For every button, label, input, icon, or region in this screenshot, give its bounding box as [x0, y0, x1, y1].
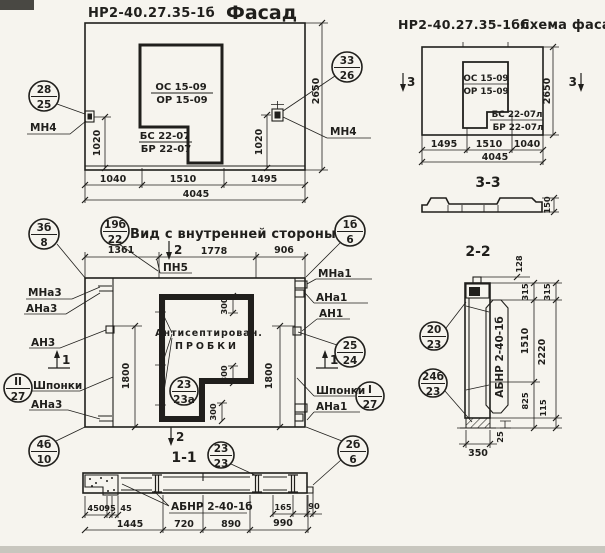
dim-300a: 300 — [219, 297, 229, 315]
boards-and-joints — [121, 473, 313, 493]
svg-text:МНа3: МНа3 — [28, 287, 62, 299]
section-mark-3-right: 3 — [569, 73, 584, 92]
section-2-2-title: 2-2 — [465, 244, 490, 260]
svg-text:АНа3: АНа3 — [31, 399, 62, 411]
dim-128: 128 — [514, 255, 524, 273]
dim-1510: 1510 — [520, 327, 531, 354]
dim-300c: 300 — [208, 403, 218, 421]
note-plugs: ПРОБКИ — [175, 341, 239, 352]
panel-name-rotated: АБНР 2-40-1б — [494, 316, 506, 398]
anchor-label-mn4-left: МН4 — [27, 121, 86, 134]
dim-90: 90 — [308, 501, 320, 511]
dim-4045: 4045 — [183, 189, 209, 200]
inner-panel-outline — [85, 278, 305, 427]
pn5-label: ПН5 — [157, 260, 192, 274]
section-mark-2-bottom: 2 — [168, 427, 184, 446]
label-ana3-lower: АНа3 — [29, 399, 100, 419]
svg-text:23: 23 — [426, 386, 441, 398]
svg-text:II: II — [14, 376, 22, 388]
callout-3b-8: 3б 8 — [29, 219, 86, 279]
dim-990: 990 — [273, 518, 293, 529]
label-an3: АН3 — [29, 330, 106, 349]
scan-smudge-bottom — [0, 546, 605, 553]
drawing-canvas: НР2-40.27.35-1б Фасад ОС 15-09 ОР 15-09 … — [0, 0, 605, 553]
svg-text:2б: 2б — [346, 439, 361, 451]
facade-code: НР2-40.27.35-1б — [88, 6, 215, 21]
dim-450: 450 — [87, 503, 105, 513]
callout-ii-27: II 27 — [4, 374, 32, 403]
top-anchor-plate — [469, 287, 480, 296]
scheme-opening-mark-1: ОС 15-09 — [463, 74, 508, 84]
callout-top: 28 — [37, 84, 52, 96]
scheme-title: Схема фасада — [520, 18, 605, 33]
dim-906: 906 — [274, 245, 294, 256]
dim-1495: 1495 — [431, 139, 457, 150]
anchor-plate-right — [271, 101, 284, 121]
label-mna3: МНа3 — [26, 287, 100, 299]
svg-text:23: 23 — [214, 443, 229, 455]
section-3-3: 3-3 150 — [422, 175, 559, 215]
svg-text:27: 27 — [11, 391, 26, 403]
section-mark-1-left: 1 — [48, 350, 70, 368]
svg-text:22: 22 — [108, 234, 123, 246]
section-1-1-title: 1-1 — [171, 450, 196, 466]
callout-20-23: 20 23 — [420, 302, 466, 351]
dim-825: 825 — [520, 392, 530, 410]
dim-45: 45 — [120, 503, 132, 513]
svg-text:I: I — [368, 384, 372, 396]
blueprint-page: НР2-40.27.35-1б Фасад ОС 15-09 ОР 15-09 … — [0, 0, 605, 553]
label-an1: АН1 — [302, 308, 350, 331]
svg-text:25: 25 — [343, 340, 358, 352]
dim-300b: 300 — [219, 365, 229, 383]
svg-text:3б: 3б — [37, 222, 52, 234]
callout-24b-23: 24б 23 — [419, 369, 472, 422]
note-antiseptic: Антисептирован. — [155, 328, 263, 339]
dim-165: 165 — [274, 502, 292, 512]
svg-text:ПН5: ПН5 — [163, 262, 188, 274]
dim-350: 350 — [468, 448, 488, 459]
svg-text:2: 2 — [176, 430, 184, 444]
inner-view-drawing: Вид с внутренней стороны Антисептирован.… — [4, 216, 384, 485]
scheme-code: НР2-40.27.35-1бл — [398, 17, 530, 32]
dim-1778: 1778 — [201, 246, 228, 257]
svg-text:20: 20 — [427, 324, 442, 336]
dim-95: 95 — [104, 503, 116, 513]
dim-1020-left: 1020 — [92, 129, 103, 156]
svg-text:24: 24 — [343, 355, 358, 367]
svg-text:8: 8 — [40, 237, 47, 249]
svg-text:Шпонки: Шпонки — [33, 380, 82, 392]
svg-text:6: 6 — [349, 454, 356, 466]
dim-315-inner: 315 — [520, 283, 530, 301]
dim-890: 890 — [221, 519, 241, 530]
scheme-sill-mark-2: БР 22-07л — [493, 123, 544, 133]
svg-text:АНа1: АНа1 — [316, 292, 347, 304]
svg-text:АНа3: АНа3 — [26, 303, 57, 315]
callout-23-23a: 23 23а — [170, 377, 198, 406]
svg-text:АН1: АН1 — [319, 308, 343, 320]
dim-1510: 1510 — [476, 139, 503, 150]
label-ana1: АНа1 — [305, 292, 368, 304]
dim-1800-right: 1800 — [264, 362, 275, 389]
svg-text:МНа1: МНа1 — [318, 268, 352, 280]
facade-sill-mark-1: БС 22-07 — [140, 131, 190, 142]
dim-2650: 2650 — [311, 77, 322, 104]
scheme-sill-mark-1: БС 22-07л — [492, 110, 543, 120]
svg-text:3: 3 — [569, 75, 577, 89]
callout-4b-10: 4б 10 — [29, 427, 85, 466]
label-shponki-right: Шпонки — [297, 378, 365, 397]
svg-text:1б: 1б — [343, 219, 358, 231]
profile-joints — [448, 205, 498, 212]
inner-top-dimensions: 1361 1778 906 — [82, 245, 308, 278]
svg-text:10: 10 — [37, 454, 52, 466]
dim-4045: 4045 — [482, 152, 508, 163]
plug-offset-dims: 300 300 300 — [208, 293, 238, 424]
svg-text:23: 23 — [177, 379, 192, 391]
svg-text:23: 23 — [214, 458, 229, 470]
anchor-label-mn4-right: МН4 — [283, 117, 371, 138]
callout-2b-6: 2б 6 — [306, 427, 368, 485]
dim-1040: 1040 — [514, 139, 541, 150]
callout-19b-22: 19б 22 — [101, 217, 158, 271]
dim-1495: 1495 — [251, 174, 277, 185]
dim-2650: 2650 — [542, 77, 553, 104]
callout-top: 33 — [340, 55, 355, 67]
svg-text:2: 2 — [174, 243, 182, 257]
svg-text:6: 6 — [346, 234, 353, 246]
dim-1510: 1510 — [170, 174, 197, 185]
svg-text:Шпонки: Шпонки — [316, 385, 365, 397]
section-3-3-profile — [422, 198, 542, 212]
facade-opening-mark-1: ОС 15-09 — [155, 82, 206, 93]
svg-text:МН4: МН4 — [330, 126, 357, 138]
callout-33-26: 33 26 — [283, 52, 362, 111]
concrete-dots — [89, 477, 115, 492]
svg-text:23а: 23а — [173, 394, 195, 406]
callout-i-27: I 27 — [356, 382, 384, 411]
dim-2220: 2220 — [537, 338, 548, 365]
dim-150: 150 — [542, 196, 552, 214]
section-mark-3-left: 3 — [400, 73, 415, 92]
svg-text:27: 27 — [363, 399, 378, 411]
svg-text:24б: 24б — [422, 371, 444, 383]
section-2-2: 2-2 АБНР 2-40-1б 20 23 24б 23 128 — [419, 244, 562, 459]
dim-1445: 1445 — [117, 519, 143, 530]
label-ana1-lower: АНа1 — [307, 401, 360, 420]
scan-smudge-top — [0, 0, 34, 10]
callout-bot: 26 — [340, 70, 355, 82]
dim-25: 25 — [495, 431, 505, 443]
facade-opening-mark-2: ОР 15-09 — [156, 95, 207, 106]
anchor-plate-left — [85, 111, 94, 122]
svg-text:23: 23 — [427, 339, 442, 351]
svg-text:АН3: АН3 — [31, 337, 55, 349]
top-anchor-tab — [473, 277, 481, 283]
callout-bot: 25 — [37, 99, 52, 111]
svg-text:АНа1: АНа1 — [316, 401, 347, 413]
callout-28-25: 28 25 — [29, 81, 85, 114]
scheme-opening-mark-2: ОР 15-09 — [463, 87, 508, 97]
dim-315-outer: 315 — [542, 283, 552, 301]
facade-title: Фасад — [226, 2, 297, 24]
svg-text:1: 1 — [62, 353, 70, 367]
svg-text:4б: 4б — [37, 439, 52, 451]
section-1-1: АБНР 2-40-1б 450 95 45 165 90 1445 720 8… — [82, 473, 322, 533]
section-1-1-name: АБНР 2-40-1б — [122, 484, 253, 513]
label-mna1: МНа1 — [307, 268, 372, 284]
dim-720: 720 — [174, 519, 194, 530]
facade-drawing: НР2-40.27.35-1б Фасад ОС 15-09 ОР 15-09 … — [27, 2, 371, 203]
svg-text:МН4: МН4 — [30, 122, 57, 134]
facade-dimensions: 1020 1020 2650 1040 1510 1495 4045 — [82, 20, 328, 203]
dim-1040: 1040 — [100, 174, 127, 185]
label-shponki-left: Шпонки — [31, 377, 113, 392]
svg-text:19б: 19б — [104, 219, 126, 231]
svg-text:3: 3 — [407, 75, 415, 89]
dim-1020-right: 1020 — [254, 128, 265, 155]
section-3-3-label: 3-3 — [475, 175, 500, 191]
facade-scheme-drawing: НР2-40.27.35-1бл Схема фасада ОС 15-09 О… — [398, 17, 605, 165]
inner-view-title: Вид с внутренней стороны — [130, 227, 336, 242]
svg-text:АБНР 2-40-1б: АБНР 2-40-1б — [171, 501, 253, 513]
dim-115: 115 — [538, 399, 548, 417]
dim-1361: 1361 — [108, 245, 134, 256]
dim-1800-left: 1800 — [121, 362, 132, 389]
facade-sill-mark-2: БР 22-07 — [141, 144, 191, 155]
callout-23-23: 23 23 — [208, 442, 257, 476]
